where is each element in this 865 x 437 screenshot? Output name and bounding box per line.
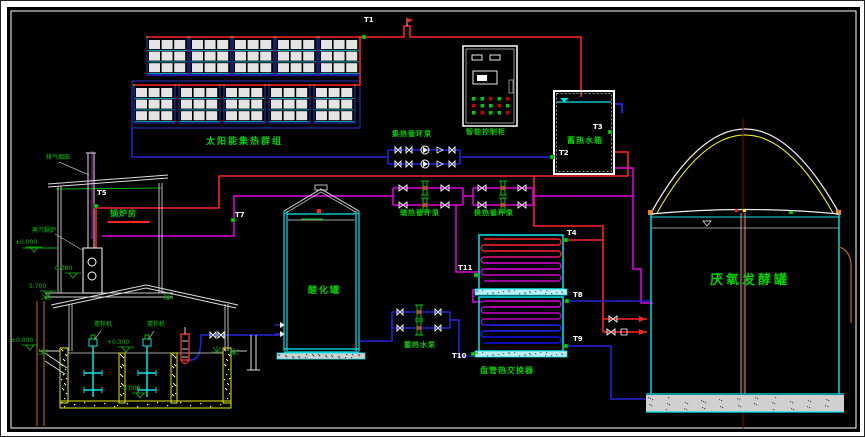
storage-tank — [554, 91, 614, 174]
pools-building — [37, 285, 260, 426]
collector-pump-label: 集热循环泵 — [392, 131, 432, 138]
aux-pump-label: 辅热循环泵 — [400, 210, 440, 217]
sensor-label-t1: T1 — [364, 17, 374, 24]
elevation-pool-bottom: -3.000 — [121, 386, 140, 392]
heat-exchanger-label: 盘管热交换器 — [480, 367, 534, 375]
digester-label: 厌氧发酵罐 — [710, 274, 790, 287]
storage-tank-label: 蓄热水箱 — [567, 137, 603, 145]
solar-array-label: 太阳能集热群组 — [206, 138, 283, 147]
piping-cold-blue — [132, 104, 651, 399]
boiler-house — [23, 153, 173, 299]
boiler-label: 蒸汽锅炉 — [32, 228, 56, 234]
elevation-pool-roof: 5.700 — [29, 284, 46, 290]
sensor-label-t3: T3 — [593, 124, 603, 131]
elevation-pool-rim: +0.300 — [107, 340, 129, 346]
elevation-boiler-floor: 0.280 — [55, 266, 72, 272]
control-cabinet — [463, 46, 517, 126]
sensor-label-t2: T2 — [559, 150, 569, 157]
mixer1-label: 搅拌机 — [94, 322, 112, 328]
sensor-label-t11: T11 — [458, 265, 473, 272]
boiler-room-label: 锅炉房 — [110, 210, 137, 218]
sensor-label-t7: T7 — [235, 212, 245, 219]
cad-drawing-page: 太阳能集热群组 集热循环泵 智能控制柜 蓄热水箱 辅热循环泵 换热循环泵 蓄热水… — [0, 0, 865, 437]
sensor-label-t9: T9 — [573, 336, 583, 343]
elevation-pool-ground: ±0.000 — [11, 338, 33, 344]
acid-tank-label: 酸化罐 — [308, 287, 341, 296]
frame — [11, 11, 856, 428]
sensor-label-t8: T8 — [573, 292, 583, 299]
drawing-canvas — [1, 1, 865, 437]
sensor-label-t5: T5 — [97, 190, 107, 197]
heat-exchanger-2 — [475, 297, 567, 357]
control-cabinet-label: 智能控制柜 — [466, 129, 506, 136]
mixer2-label: 搅拌机 — [147, 322, 165, 328]
sensor-label-t10: T10 — [452, 353, 467, 360]
hx-pump-label: 换热循环泵 — [474, 210, 514, 217]
acidification-tank — [277, 185, 365, 359]
storage-water-pump-label: 蓄热水泵 — [404, 342, 436, 349]
elevation-boiler-ground: ±0.000 — [15, 240, 37, 246]
heat-exchanger-1 — [475, 235, 567, 295]
chimney-label: 排气烟囱 — [46, 155, 70, 161]
elevation-marks — [22, 247, 148, 398]
sensor-label-t4: T4 — [567, 230, 577, 237]
solar-array — [132, 36, 361, 128]
